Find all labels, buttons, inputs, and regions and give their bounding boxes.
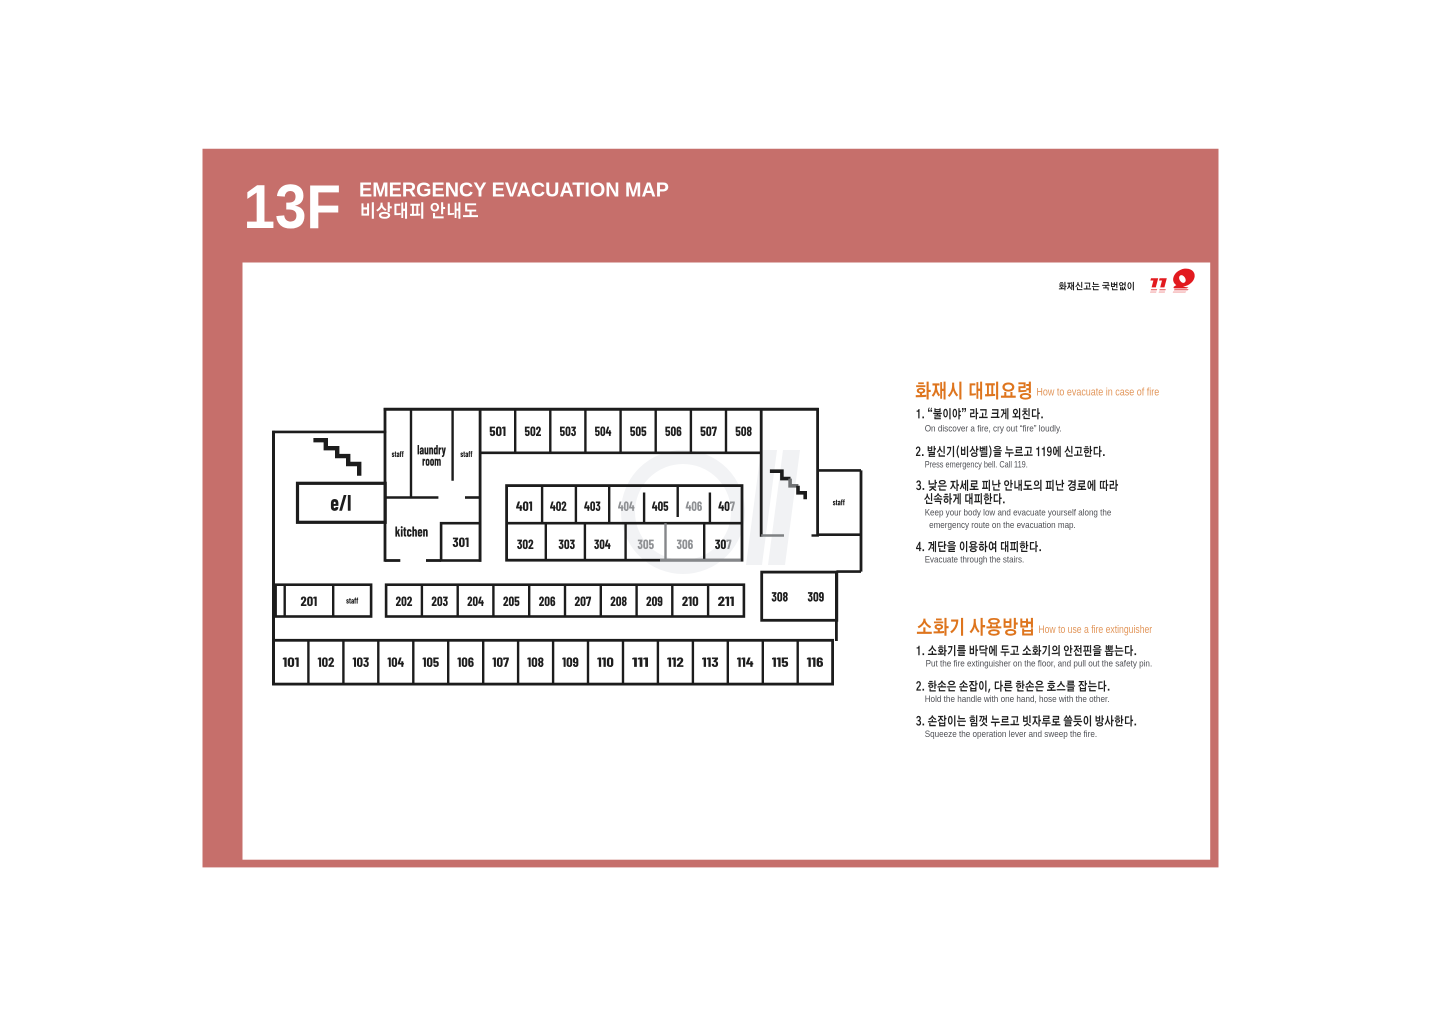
svg-text:13F: 13F [244, 173, 342, 242]
svg-text:How to evacuate in case of fir: How to evacuate in case of fire [1036, 387, 1159, 399]
svg-text:Evacuate through the stairs.: Evacuate through the stairs. [925, 555, 1024, 565]
svg-text:Keep your body low and evacuat: Keep your body low and evacuate yourself… [925, 508, 1112, 518]
svg-text:How to use a fire extinguisher: How to use a fire extinguisher [1038, 624, 1152, 636]
svg-text:emergency route on the evacuat: emergency route on the evacuation map. [929, 520, 1076, 530]
svg-text:Press emergency bell. Call 119: Press emergency bell. Call 119. [925, 459, 1028, 469]
svg-text:On discover a fire, cry out “f: On discover a fire, cry out “fire” loudl… [925, 423, 1062, 433]
svg-text:EMERGENCY EVACUATION MAP: EMERGENCY EVACUATION MAP [359, 178, 669, 201]
svg-text:Put the fire extinguisher on t: Put the fire extinguisher on the floor, … [926, 659, 1153, 669]
svg-text:Squeeze the operation lever an: Squeeze the operation lever and sweep th… [925, 729, 1097, 739]
svg-text:Hold the handle with one hand,: Hold the handle with one hand, hose with… [925, 694, 1110, 704]
